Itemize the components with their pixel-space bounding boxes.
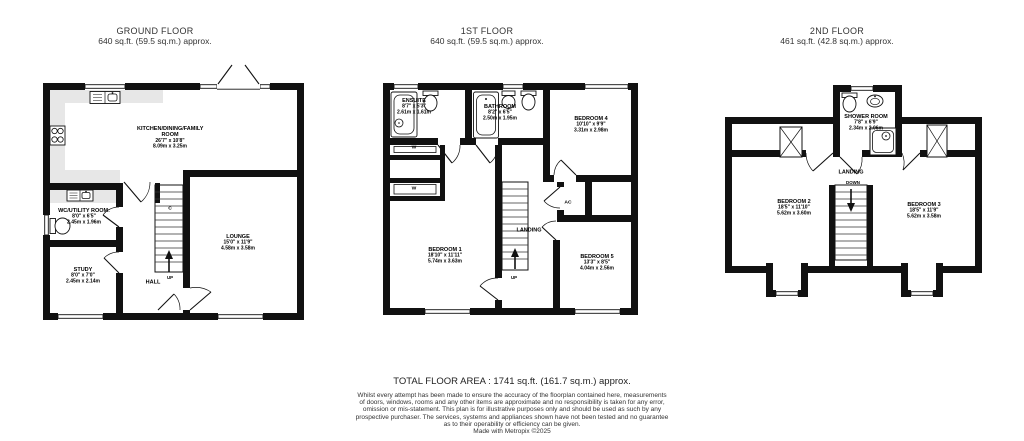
- room-label-wc-utility: WC/UTILITY ROOM: 8'0" x 6'5" 2.45m x 1.9…: [58, 207, 110, 224]
- cupboard-label: C: [168, 205, 172, 210]
- room-label-bedroom5: BEDROOM 5 13'3" x 8'5" 4.04m x 2.56m: [580, 253, 614, 270]
- second-floor-plan: [720, 75, 1020, 305]
- first-floor-title: 1ST FLOOR: [430, 26, 543, 36]
- room-label-bedroom1: BEDROOM 1 18'10" x 11'11" 5.74m x 3.63m: [428, 246, 462, 263]
- disclaimer: Whilst every attempt has been made to en…: [356, 392, 669, 435]
- french-doors: [217, 65, 260, 90]
- room-label-landing-second: LANDING: [838, 169, 863, 175]
- room-label-lounge: LOUNGE 15'0" x 11'9" 4.58m x 3.58m: [221, 233, 255, 250]
- shower-window: [851, 85, 873, 92]
- wardrobe-label-2: W: [412, 185, 417, 190]
- disclaimer-line: Whilst every attempt has been made to en…: [356, 392, 669, 399]
- room-label-bedroom2: BEDROOM 2 18'5" x 11'10" 5.62m x 3.60m: [777, 198, 811, 215]
- room-label-study: STUDY 8'0" x 7'0" 2.45m x 2.14m: [66, 266, 100, 283]
- room-label-shower-room: SHOWER ROOM 7'8" x 6'9" 2.34m x 2.06m: [844, 113, 887, 130]
- room-label-bedroom3: BEDROOM 3 18'5" x 11'9" 5.62m x 3.58m: [907, 201, 941, 218]
- ground-floor-plan: [40, 60, 350, 330]
- ground-floor-area: 640 sq.ft. (59.5 sq.m.) approx.: [98, 36, 211, 46]
- shower-enclosure-icon: [870, 128, 896, 155]
- stairs-down-label: DOWN: [846, 181, 860, 186]
- room-label-bathroom: BATHROOM 8'2" x 6'5" 2.50m x 1.95m: [483, 103, 517, 120]
- skylight-left-icon: [780, 127, 802, 157]
- dormer-left: [766, 259, 808, 297]
- stairs-up-label-ground: UP: [167, 276, 173, 281]
- total-floor-area: TOTAL FLOOR AREA : 1741 sq.ft. (161.7 sq…: [393, 376, 630, 387]
- room-label-kitchen: KITCHEN/DINING/FAMILY ROOM 26'7" x 10'8"…: [137, 125, 203, 149]
- first-floor-area: 640 sq.ft. (59.5 sq.m.) approx.: [430, 36, 543, 46]
- floorplan-page: GROUND FLOOR 640 sq.ft. (59.5 sq.m.) app…: [0, 0, 1024, 441]
- bathroom-toilet-icon: [521, 91, 536, 110]
- room-label-bedroom4: BEDROOM 4 10'10" x 9'9" 3.31m x 2.98m: [574, 115, 608, 132]
- ground-floor-title: GROUND FLOOR: [98, 26, 211, 36]
- wardrobe-label-1: W: [412, 144, 417, 149]
- disclaimer-line: omission or mis-statement. This plan is …: [356, 406, 669, 413]
- utility-sink-icon: [67, 190, 93, 201]
- stairs-up-label-first: UP: [511, 276, 517, 281]
- dormer-right: [901, 259, 943, 297]
- disclaimer-line: as to their operability or efficiency ca…: [356, 421, 669, 428]
- disclaimer-line: prospective purchaser. The services, sys…: [356, 414, 669, 421]
- hob-icon: [50, 126, 65, 145]
- first-floor-header: 1ST FLOOR 640 sq.ft. (59.5 sq.m.) approx…: [430, 26, 543, 46]
- skylight-right-icon: [927, 125, 947, 157]
- kitchen-sink-icon: [90, 92, 120, 104]
- room-label-hall: HALL: [146, 279, 161, 285]
- shower-toilet-icon: [842, 93, 857, 112]
- disclaimer-line: of doors, windows, rooms and any other i…: [356, 399, 669, 406]
- room-label-landing-first: LANDING: [516, 227, 541, 233]
- shower-sink-icon: [867, 95, 883, 107]
- ac-cupboard-label: AC: [564, 199, 571, 204]
- second-floor-header: 2ND FLOOR 461 sq.ft. (42.8 sq.m.) approx…: [780, 26, 893, 46]
- second-floor-title: 2ND FLOOR: [780, 26, 893, 36]
- metropix-credit: Made with Metropix ©2025: [356, 428, 669, 435]
- room-label-ensuite: ENSUITE 8'7" x 5'3" 2.61m x 1.61m: [397, 97, 431, 114]
- second-floor-area: 461 sq.ft. (42.8 sq.m.) approx.: [780, 36, 893, 46]
- ground-floor-header: GROUND FLOOR 640 sq.ft. (59.5 sq.m.) app…: [98, 26, 211, 46]
